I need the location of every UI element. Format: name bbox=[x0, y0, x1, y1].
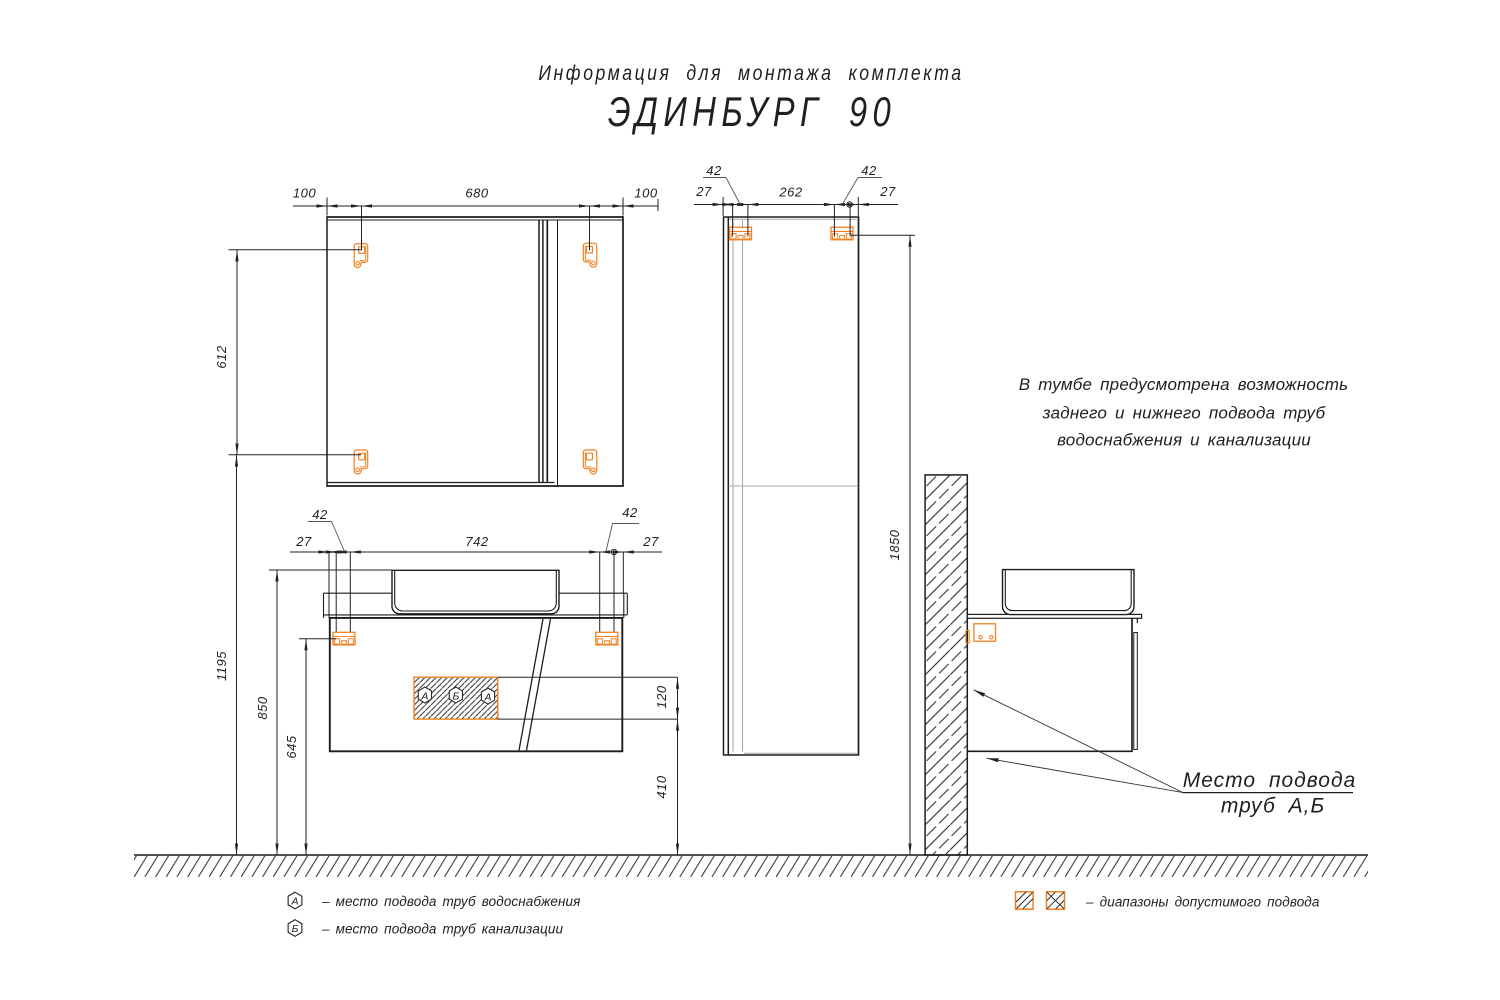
svg-text:645: 645 bbox=[284, 735, 299, 758]
svg-text:водоснабжения и канализации: водоснабжения и канализации bbox=[1057, 431, 1311, 450]
svg-text:труб А,Б: труб А,Б bbox=[1221, 795, 1325, 818]
svg-text:850: 850 bbox=[255, 696, 270, 719]
svg-text:1850: 1850 bbox=[887, 529, 902, 560]
svg-text:100: 100 bbox=[634, 186, 657, 201]
svg-text:742: 742 bbox=[465, 534, 488, 549]
svg-text:Б: Б bbox=[292, 923, 299, 935]
svg-text:120: 120 bbox=[654, 685, 669, 708]
svg-text:Место подвода: Место подвода bbox=[1183, 769, 1357, 792]
svg-text:– место подвода труб канализа: – место подвода труб канализации bbox=[321, 922, 563, 937]
svg-text:А: А bbox=[420, 690, 428, 702]
svg-text:В тумбе предусмотрена возможно: В тумбе предусмотрена возможность bbox=[1019, 375, 1348, 394]
svg-text:27: 27 bbox=[879, 184, 896, 199]
svg-text:А: А bbox=[483, 691, 491, 703]
svg-text:1195: 1195 bbox=[214, 651, 229, 681]
svg-text:410: 410 bbox=[654, 775, 669, 798]
svg-text:Информация для монтажа комплек: Информация для монтажа комплекта bbox=[538, 62, 963, 86]
svg-text:27: 27 bbox=[295, 534, 312, 549]
svg-text:100: 100 bbox=[293, 186, 316, 201]
svg-text:680: 680 bbox=[465, 186, 488, 201]
svg-text:ЭДИНБУРГ 90: ЭДИНБУРГ 90 bbox=[608, 88, 896, 135]
svg-text:42: 42 bbox=[312, 507, 328, 522]
svg-text:заднего и нижнего подвода труб: заднего и нижнего подвода труб bbox=[1042, 404, 1327, 423]
svg-text:612: 612 bbox=[214, 345, 229, 368]
svg-text:А: А bbox=[290, 895, 298, 907]
svg-text:42: 42 bbox=[861, 163, 877, 178]
svg-text:– место подвода труб водоснаб: – место подвода труб водоснабжения bbox=[321, 894, 580, 909]
svg-text:Б: Б bbox=[452, 690, 459, 702]
svg-text:27: 27 bbox=[642, 534, 659, 549]
svg-text:42: 42 bbox=[706, 163, 722, 178]
svg-text:27: 27 bbox=[695, 184, 712, 199]
svg-text:42: 42 bbox=[622, 505, 638, 520]
svg-text:– диапазоны допустимого подво: – диапазоны допустимого подвода bbox=[1085, 895, 1320, 910]
svg-text:262: 262 bbox=[778, 185, 802, 200]
